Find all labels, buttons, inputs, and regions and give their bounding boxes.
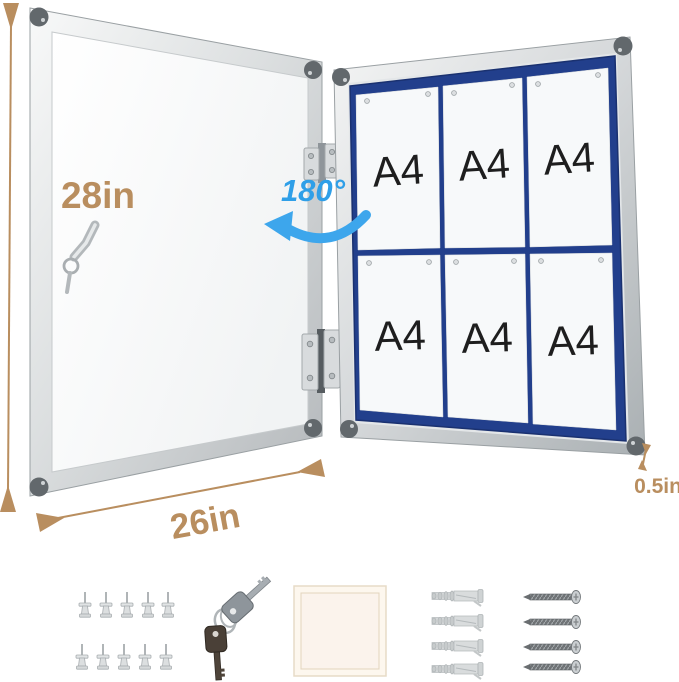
screw-icon: [523, 661, 581, 674]
product-diagram: A4 A4 A4 A4 A4: [0, 0, 679, 682]
accessory-keys: [204, 571, 276, 681]
a4-sheet: A4: [356, 87, 440, 250]
keys-icon: [204, 625, 229, 680]
arrowhead-up-icon: [3, 3, 19, 30]
accessory-backing-panel: [294, 586, 386, 676]
wall-anchor-icon: [432, 640, 483, 657]
cap-screw: [350, 424, 354, 428]
push-pin-icon: [142, 592, 154, 617]
a4-label: A4: [374, 311, 427, 360]
push-pin-icon: [160, 644, 172, 669]
cap-screw: [343, 78, 347, 82]
push-pin-icon: [365, 99, 370, 104]
push-pin-icon: [367, 261, 372, 266]
door-face: [52, 32, 308, 472]
a4-sheet: A4: [443, 78, 525, 248]
wall-anchor-icon: [432, 663, 483, 680]
cap-screw: [308, 423, 312, 427]
a4-sheet: A4: [445, 254, 528, 423]
push-pin-icon: [452, 91, 457, 96]
wall-anchor-icon: [432, 615, 483, 632]
cabinet-corner-cap: [614, 37, 633, 56]
a4-sheet: A4: [527, 68, 612, 247]
depth-dimension-label: 0.5in: [634, 475, 679, 498]
accessory-screws: [523, 591, 581, 674]
a4-label: A4: [542, 133, 597, 183]
accessory-push-pins: [76, 592, 174, 669]
push-pin-icon: [121, 592, 133, 617]
push-pin-icon: [100, 592, 112, 617]
cabinet-corner-cap: [332, 68, 350, 86]
width-dimension-label: 26in: [167, 496, 243, 547]
cap-screw: [308, 71, 312, 75]
door-corner-cap: [304, 61, 322, 79]
door-corner-cap: [30, 478, 49, 497]
push-pin-icon: [139, 644, 151, 669]
opening-angle-label: 180°: [281, 173, 346, 208]
cabinet-corner-cap: [627, 437, 646, 456]
screw-icon: [523, 641, 581, 654]
push-pin-icon: [118, 644, 130, 669]
keys-icon: [220, 571, 276, 625]
push-pin-icon: [512, 259, 517, 264]
cap-screw: [41, 18, 45, 22]
push-pin-icon: [426, 92, 431, 97]
push-pin-icon: [536, 82, 541, 87]
cap-screw: [41, 481, 45, 485]
accessory-wall-anchors: [432, 590, 483, 680]
push-pin-icon: [427, 260, 432, 265]
a4-sheet: A4: [530, 253, 616, 430]
door: [30, 8, 323, 497]
cabinet: A4 A4 A4 A4 A4: [332, 37, 646, 456]
cabinet-corner-cap: [340, 420, 358, 438]
push-pin-icon: [79, 592, 91, 617]
a4-sheet: A4: [358, 255, 443, 417]
arrowhead-down-icon: [638, 460, 647, 471]
arrowhead-right-icon: [297, 459, 325, 477]
a4-label: A4: [547, 316, 600, 365]
push-pin-icon: [76, 644, 88, 669]
door-corner-cap: [304, 419, 322, 437]
arrowhead-left-icon: [36, 513, 64, 532]
push-pin-icon: [510, 83, 515, 88]
a4-label: A4: [457, 139, 512, 189]
push-pin-icon: [97, 644, 109, 669]
a4-label: A4: [371, 145, 426, 195]
push-pin-icon: [599, 258, 604, 263]
cap-screw: [631, 441, 635, 445]
hinge-middle: [302, 329, 340, 393]
push-pin-icon: [454, 260, 459, 265]
product-illustration: A4 A4 A4 A4 A4: [0, 0, 679, 682]
push-pin-icon: [596, 73, 601, 78]
arrowhead-down-icon: [0, 485, 16, 512]
screw-icon: [523, 591, 581, 604]
a4-label: A4: [461, 313, 514, 362]
cap-screw: [618, 48, 622, 52]
screw-icon: [523, 616, 581, 629]
backing-panel-inner-frame: [301, 593, 379, 669]
door-corner-cap: [30, 8, 49, 27]
wall-anchor-icon: [432, 590, 483, 607]
push-pin-icon: [539, 259, 544, 264]
push-pin-icon: [162, 592, 174, 617]
height-dimension-label: 28in: [61, 175, 135, 216]
